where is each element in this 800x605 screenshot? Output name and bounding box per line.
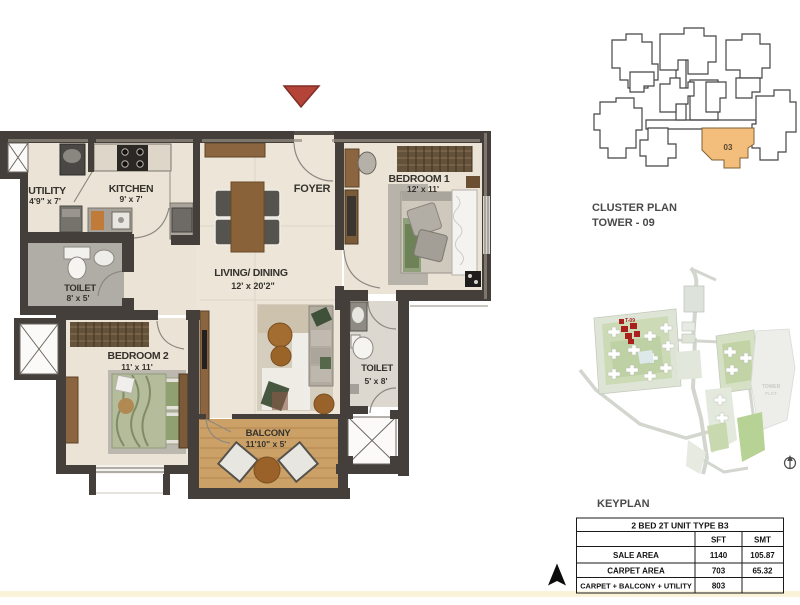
svg-text:12' x 20'2": 12' x 20'2" bbox=[231, 281, 275, 291]
svg-text:BEDROOM 2: BEDROOM 2 bbox=[108, 350, 169, 362]
svg-text:2 BED 2T UNIT TYPE B3: 2 BED 2T UNIT TYPE B3 bbox=[631, 521, 729, 531]
svg-text:BALCONY: BALCONY bbox=[246, 428, 292, 439]
svg-text:03: 03 bbox=[724, 143, 733, 152]
svg-text:SALE AREA: SALE AREA bbox=[613, 551, 659, 560]
svg-text:803: 803 bbox=[712, 582, 726, 591]
svg-text:1140: 1140 bbox=[710, 551, 728, 560]
svg-text:12' x 11': 12' x 11' bbox=[407, 184, 439, 194]
svg-text:703: 703 bbox=[712, 567, 726, 576]
svg-text:KEYPLAN: KEYPLAN bbox=[597, 498, 650, 510]
svg-text:11'10" x 5': 11'10" x 5' bbox=[246, 439, 287, 449]
svg-text:TOWER: TOWER bbox=[762, 384, 781, 390]
svg-text:9' x 7': 9' x 7' bbox=[120, 194, 143, 204]
svg-text:65.32: 65.32 bbox=[752, 567, 773, 576]
svg-text:5' x 8': 5' x 8' bbox=[365, 376, 388, 386]
svg-text:11' x 11': 11' x 11' bbox=[121, 362, 152, 372]
svg-text:TOILET: TOILET bbox=[361, 363, 393, 374]
svg-text:CARPET AREA: CARPET AREA bbox=[607, 567, 665, 576]
svg-text:TOWER - 09: TOWER - 09 bbox=[592, 217, 655, 229]
svg-text:LIVING/ DINING: LIVING/ DINING bbox=[214, 267, 288, 279]
svg-text:105.87: 105.87 bbox=[750, 551, 775, 560]
svg-text:SFT: SFT bbox=[711, 536, 726, 545]
svg-text:4'9" x 7': 4'9" x 7' bbox=[29, 196, 61, 206]
svg-text:8' x 5': 8' x 5' bbox=[67, 293, 90, 303]
svg-text:FOYER: FOYER bbox=[294, 183, 331, 195]
svg-text:PLOT: PLOT bbox=[765, 391, 777, 396]
svg-text:SMT: SMT bbox=[754, 536, 771, 545]
svg-text:CLUSTER PLAN: CLUSTER PLAN bbox=[592, 202, 677, 214]
svg-text:CARPET + BALCONY + UTILITY: CARPET + BALCONY + UTILITY bbox=[580, 582, 692, 591]
svg-text:T-09: T-09 bbox=[625, 318, 635, 324]
